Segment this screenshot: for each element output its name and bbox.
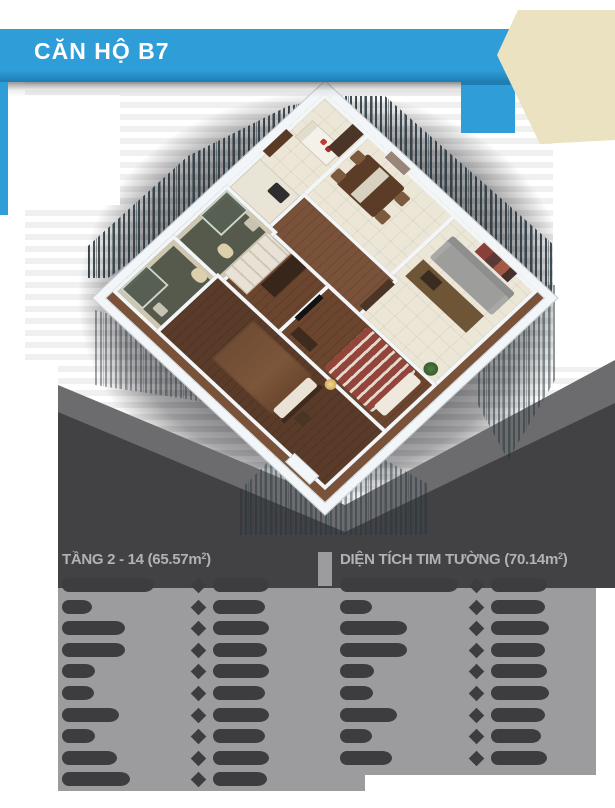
top-left-margin [0,95,120,205]
redacted-room-label [340,729,372,743]
diamond-bullet [191,729,207,745]
redacted-row [340,708,610,722]
diamond-bullet [469,664,485,680]
redacted-area-value [213,772,267,786]
redacted-room-label [62,772,130,786]
redacted-area-value [491,600,545,614]
redacted-room-label [340,664,374,678]
diamond-bullet [191,578,207,594]
redacted-area-value [213,600,265,614]
redacted-room-label [62,686,94,700]
redacted-row [340,600,610,614]
redacted-area-value [491,643,545,657]
redacted-row [62,751,332,765]
table-title-right-close: ) [563,551,568,568]
diamond-bullet [469,599,485,615]
redacted-row [62,729,332,743]
redacted-row [340,664,610,678]
table-title-left: TẦNG 2 - 14 (65.57m [62,551,201,568]
table-header-right: DIỆN TÍCH TIM TƯỜNG (70.14m2) [340,551,567,568]
diamond-bullet [191,686,207,702]
redacted-row [340,729,610,743]
redacted-row [340,686,610,700]
header-drop-shadow [6,82,511,97]
redacted-row [62,664,332,678]
redacted-room-label [62,708,119,722]
redacted-row [62,772,332,786]
diamond-bullet [191,751,207,767]
redacted-room-label [62,729,95,743]
redacted-area-value [213,664,269,678]
redacted-room-label [62,621,125,635]
redacted-area-value [491,578,547,592]
brochure-page: { "header": { "title": "CĂN HỘ B7", "col… [0,0,615,806]
diamond-bullet [469,686,485,702]
redacted-area-value [213,578,269,592]
left-margin [0,360,58,806]
redacted-room-label [340,643,407,657]
redacted-row [62,621,332,635]
redacted-area-value [491,729,541,743]
diamond-bullet [191,599,207,615]
diamond-bullet [191,707,207,723]
diamond-bullet [469,621,485,637]
left-ribbon [0,82,8,215]
redacted-area-value [491,686,549,700]
redacted-row [340,578,610,592]
redacted-row [62,643,332,657]
redacted-room-label [340,600,372,614]
redacted-area-value [213,643,267,657]
redacted-row [62,578,332,592]
table-title-right: DIỆN TÍCH TIM TƯỜNG (70.14m [340,551,558,568]
diamond-bullet [469,707,485,723]
redacted-area-value [213,621,269,635]
redacted-area-value [491,664,547,678]
diamond-bullet [469,751,485,767]
redacted-row [340,621,610,635]
area-table-right [340,588,610,808]
area-table-left [62,588,332,808]
redacted-room-label [62,664,95,678]
redacted-room-label [340,578,458,592]
diamond-bullet [191,621,207,637]
diamond-bullet [469,643,485,659]
diamond-bullet [191,772,207,788]
redacted-room-label [62,751,117,765]
table-title-left-close: ) [206,551,211,568]
redacted-row [62,708,332,722]
redacted-area-value [213,751,269,765]
redacted-area-value [491,708,545,722]
redacted-room-label [62,600,92,614]
redacted-room-label [62,578,154,592]
redacted-row [340,643,610,657]
redacted-room-label [62,643,125,657]
redacted-area-value [491,751,547,765]
table-header-left: TẦNG 2 - 14 (65.57m2) [62,551,211,568]
redacted-room-label [340,708,397,722]
redacted-area-value [213,686,265,700]
header-tab [461,82,515,133]
diamond-bullet [469,578,485,594]
page-title: CĂN HỘ B7 [34,38,170,65]
redacted-room-label [340,621,407,635]
redacted-area-value [213,729,265,743]
redacted-room-label [340,751,392,765]
diamond-bullet [191,643,207,659]
redacted-area-value [213,708,269,722]
redacted-area-value [491,621,549,635]
redacted-row [62,600,332,614]
diamond-bullet [191,664,207,680]
redacted-row [62,686,332,700]
diamond-bullet [469,729,485,745]
redacted-row [340,751,610,765]
redacted-room-label [340,686,373,700]
